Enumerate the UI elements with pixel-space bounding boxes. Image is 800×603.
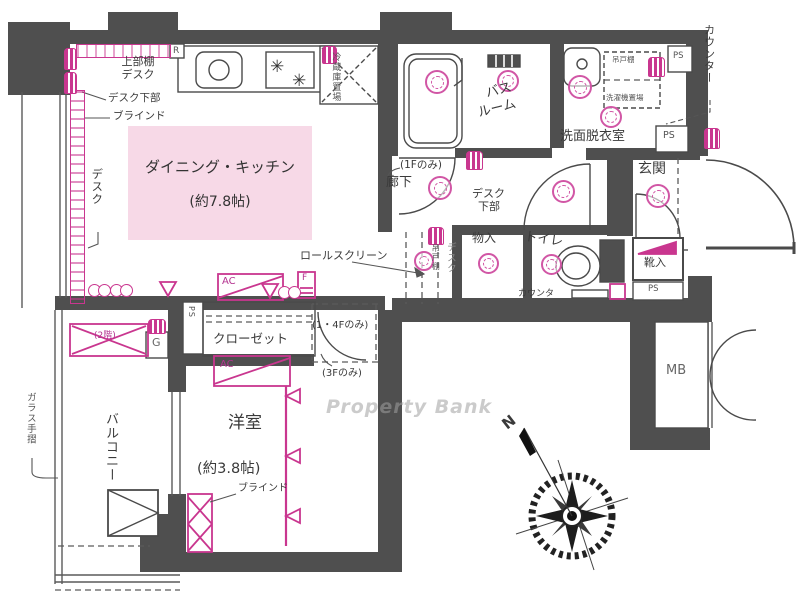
ceiling-light-icon	[646, 184, 670, 208]
front-door-leaf	[706, 242, 794, 254]
ceiling-light-icon	[425, 70, 449, 94]
bathtub	[404, 54, 462, 148]
meter-box-door-arcs	[710, 330, 756, 420]
label-ps-3: PS	[648, 285, 659, 295]
upper-shelf-desk-text: デスク	[108, 69, 168, 82]
toilet-tank	[600, 240, 624, 282]
label-floor3-only: (3Fのみ)	[322, 368, 362, 380]
label-blind-left: ブラインド	[113, 110, 166, 122]
vent-icon	[64, 72, 77, 94]
vent-icon	[64, 48, 77, 70]
vent-icon	[148, 319, 166, 334]
ceiling-light-icon	[541, 254, 562, 275]
toilet-counter	[572, 290, 608, 298]
label-counter-small: カウンタ	[518, 289, 554, 299]
label-western: 洋室	[228, 414, 262, 434]
label-storage: 物入	[472, 232, 496, 246]
label-ps-4: PS	[187, 306, 196, 350]
outlet-icon	[110, 284, 133, 297]
label-desk-lower-left: デスク下部	[108, 92, 161, 104]
paper-holder	[610, 284, 625, 299]
label-ac-western: AC	[220, 359, 234, 371]
watermark: Property Bank	[326, 396, 492, 418]
label-hall-desk: デスク	[472, 188, 505, 201]
label-f: F	[302, 273, 307, 283]
outlet-icon	[88, 284, 111, 297]
label-floor14-only: (1・4Fのみ)	[312, 320, 368, 332]
upper-shelf-text: 上部棚	[108, 56, 168, 69]
label-washer-space: 洗濯機置場	[606, 94, 644, 103]
dining-room-size: (約7.8帖)	[189, 191, 250, 211]
label-r: R	[173, 46, 179, 56]
svg-text:✳: ✳	[292, 71, 306, 91]
label-counter-right: カウンター	[702, 24, 715, 132]
kitchen-sink	[196, 52, 242, 88]
label-desk-left: デスク	[90, 168, 103, 234]
bedroom-blind-box	[188, 494, 212, 552]
ceiling-light-icon	[568, 75, 592, 99]
ceiling-light-icon	[552, 180, 575, 203]
front-door-arc	[706, 160, 794, 248]
label-upper-shelf: 上部棚 デスク	[108, 56, 168, 81]
label-outdoor-unit: (2階)	[94, 331, 116, 341]
vent-icon	[466, 151, 483, 170]
label-balcony: バルコニー	[102, 412, 117, 512]
room-dining-kitchen: ダイニング・キッチン (約7.8帖)	[128, 126, 312, 240]
label-floor1-only: (1Fのみ)	[400, 159, 442, 171]
outlet-icon	[278, 286, 301, 299]
svg-text:✳: ✳	[270, 57, 284, 77]
label-meter-box: MB	[666, 364, 686, 379]
label-ps-2: PS	[663, 131, 675, 142]
label-ps-1: PS	[673, 52, 684, 62]
label-blind-bedroom: ブラインド	[238, 483, 288, 495]
label-glass-rail: ガラス手摺	[24, 392, 35, 464]
label-hallway: 廊下	[386, 176, 412, 191]
floorplan: ✳✳	[0, 0, 800, 603]
label-nook-shelf: 吊戸棚	[431, 244, 440, 300]
vent-icon	[648, 57, 665, 77]
label-hanging-cupboard: 吊戸棚	[612, 56, 635, 65]
dining-room-label: ダイニング・キッチン	[145, 156, 295, 177]
floorplan-graphics: ✳✳	[0, 0, 800, 603]
label-fridge-space: 冷蔵庫置場	[330, 52, 340, 100]
label-washroom: 洗面脱衣室	[560, 130, 625, 145]
label-nook-desk: デスク	[444, 242, 455, 298]
label-ac-dining: AC	[222, 276, 236, 288]
ceiling-light-icon	[478, 253, 499, 274]
label-western-size: (約3.8帖)	[197, 461, 260, 478]
label-g: G	[152, 337, 161, 350]
compass-rose	[516, 428, 628, 570]
label-entrance: 玄関	[638, 161, 666, 177]
label-hall-desk-lower: 下部	[478, 201, 500, 214]
closet-box	[203, 302, 315, 356]
blind-strip	[70, 90, 85, 304]
ceiling-light-icon	[600, 106, 622, 128]
label-roll-screen: ロールスクリーン	[300, 250, 387, 263]
label-closet: クローゼット	[213, 332, 288, 346]
label-shoe-cabinet: 靴入	[644, 257, 666, 270]
ceiling-light-icon	[428, 176, 452, 200]
vent-icon	[428, 227, 444, 245]
